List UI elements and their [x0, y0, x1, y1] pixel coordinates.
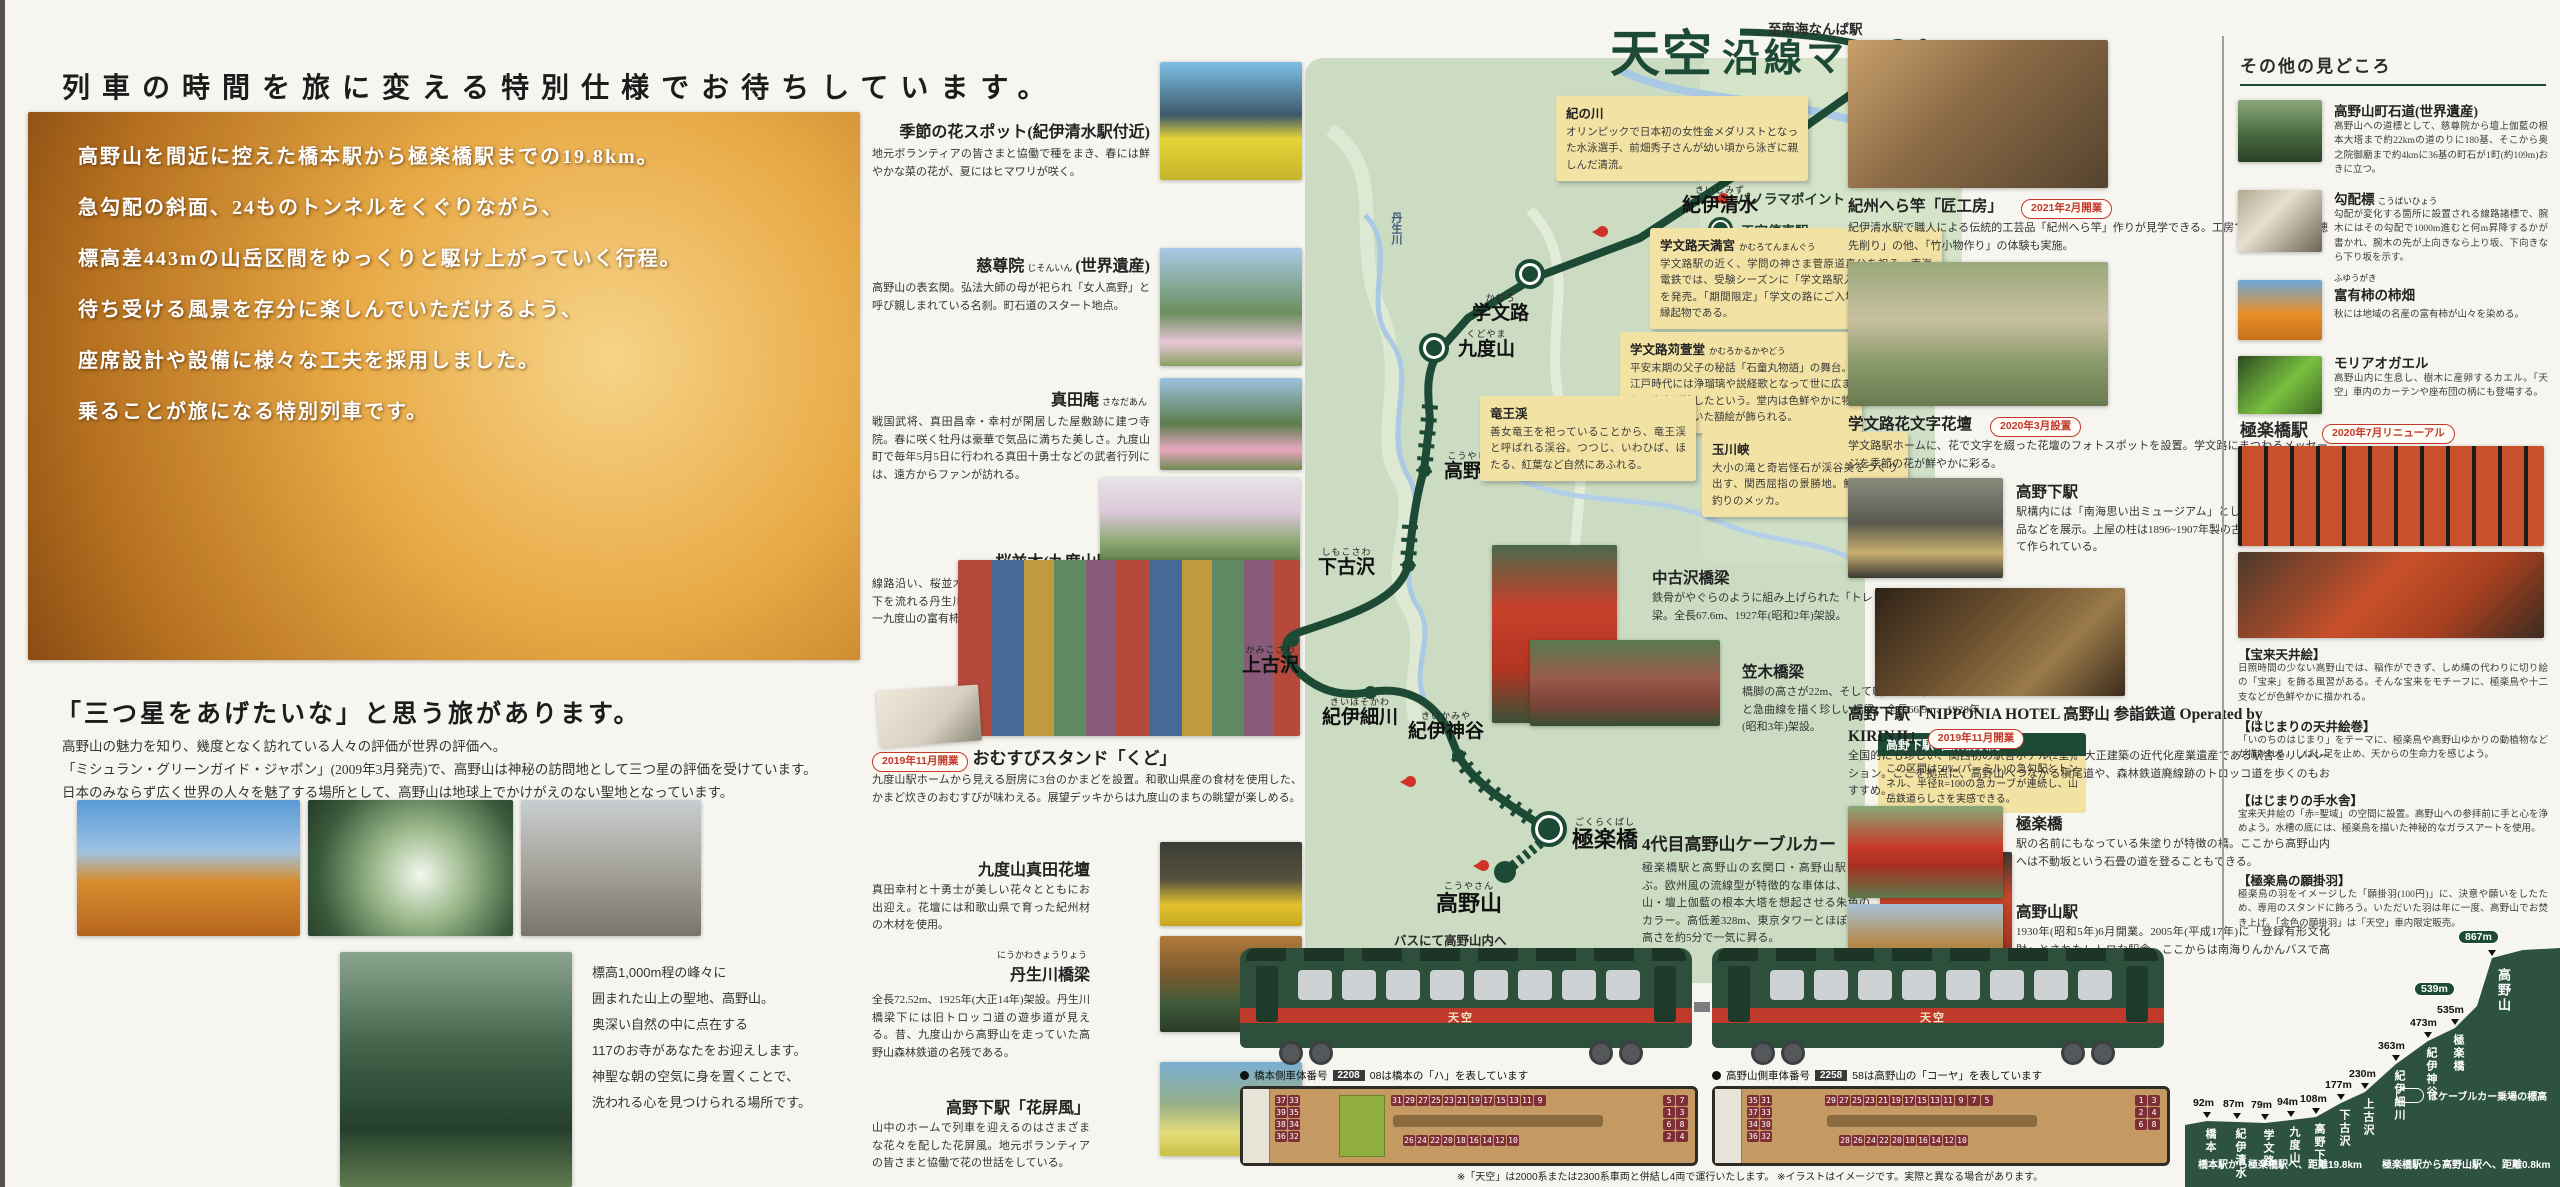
spot-omusubi-header: 2019年11月開業 おむすびスタンド「くど」: [872, 744, 1302, 772]
train-logo-2: 天空: [1920, 1009, 1946, 1025]
cable-pill-icon: [2396, 1088, 2424, 1103]
misc-title-kobaihyo: 勾配標 こうばいひょう: [2334, 188, 2437, 208]
spot-body-kadan: 真田幸村と十勇士が美しい花々とともにお出迎え。花壇には和歌山県で育った紀州材の木…: [872, 882, 1090, 935]
car-number-badge: 2258: [1815, 1070, 1847, 1081]
station-label-kudoyama: くどやま九度山: [1458, 330, 1515, 361]
train-windows-2: [1770, 970, 2112, 1000]
gk-sec2-body: 「いのちのはじまり」をテーマに、極楽鳥や高野山ゆかりの動植物などが描かれる。しば…: [2238, 734, 2548, 763]
badge-gokurakubashi: 2020年7月リニューアル: [2322, 424, 2455, 444]
ele-val: 87m: [2223, 1098, 2244, 1110]
ele-val: 177m: [2325, 1079, 2352, 1091]
photo-station-lobby: [2238, 552, 2544, 638]
rc-item6-title: 高野山駅: [2016, 900, 2078, 922]
ele-marker: [2451, 1019, 2459, 1029]
station-dot-kudoyama: [1423, 337, 1445, 359]
station-label-kiishimizu: きいしみず紀伊清水: [1682, 186, 1758, 217]
rc-item5-title: 極楽橋: [2016, 812, 2063, 834]
station-dot-koyashita: [1418, 464, 1431, 477]
train-wheel: [1754, 1044, 1772, 1062]
callout-ryuokei: 竜王渓 善女竜王を祀っていることから、竜王渓と呼ばれる渓谷。つつじ、いわひば、ほ…: [1480, 396, 1696, 481]
ele-val: 230m: [2349, 1068, 2376, 1080]
gk-sec2-title: 【はじまりの天井絵巻】: [2238, 716, 2376, 735]
headline: 列車の時間を旅に変える特別仕様でお待ちしています。: [62, 66, 1058, 106]
ele-marker: [2312, 1108, 2320, 1118]
photo-gokuraku-bridge: [1848, 806, 2003, 898]
michelin-title: 「三つ星をあげたいな」と思う旅があります。: [56, 694, 642, 730]
gk-sec3-title: 【はじまりの手水舎】: [2238, 790, 2363, 809]
ele-marker: [2392, 1055, 2400, 1065]
seatmap-counter: [1393, 1115, 1603, 1127]
misc-body-kobaihyo: 勾配が変化する箇所に設置される線路諸標で、腕木にはその勾配で1000m進むと何m…: [2334, 208, 2548, 265]
spot-title-kadan: 九度山真田花壇: [872, 856, 1090, 880]
seatmap-counter: [1827, 1115, 2037, 1127]
train-wheel: [1312, 1044, 1330, 1062]
ele-val: 108m: [2300, 1093, 2327, 1105]
train-door-1b: [1654, 966, 1676, 1022]
spot-title-hanabyobu: 高野下駅「花屏風」: [872, 1094, 1090, 1118]
spot-body-hana: 地元ボランティアの皆さまと協働で種をまき、春には鮮やかな菜の花が、夏にはヒマワリ…: [872, 146, 1150, 181]
spot-title-hana: 季節の花スポット(紀伊清水駅付近): [872, 118, 1150, 142]
brochure-page: 列車の時間を旅に変える特別仕様でお待ちしています。 高野山を間近に控えた橋本駅か…: [0, 0, 2560, 1187]
train-logo-1: 天空: [1448, 1009, 1474, 1025]
ele-val: 363m: [2378, 1040, 2405, 1052]
station-label-kiikamiya: きいかみや紀伊神谷: [1408, 712, 1484, 743]
train-windows-1: [1298, 970, 1640, 1000]
seat-pairs-left: 3733393538343632: [1275, 1095, 1301, 1143]
ele-station: 紀伊清水: [2232, 1128, 2248, 1180]
misc-header: その他の見どころ: [2240, 52, 2392, 77]
column-divider: [2222, 36, 2224, 940]
seatmap-koyasan-car: 3531373334303632 29272523211917151311975…: [1712, 1086, 2170, 1166]
ele-station: 上古沢: [2360, 1098, 2376, 1137]
seatmap-caption-right: 高野山側車体番号 2258 58は高野山の「コーヤ」を表しています: [1712, 1068, 2042, 1083]
badge-nipponia: 2019年11月開業: [1928, 729, 2024, 749]
distance-note-2: 極楽橋駅から高野山駅へ、距離0.8km: [2382, 1156, 2550, 1171]
to-namba-label: 至南海なんば駅: [1768, 18, 1863, 38]
michelin-text: 高野山の魅力を知り、幾度となく訪れている人々の評価が世界の評価へ。 「ミシュラン…: [62, 736, 862, 805]
bus-note: バスにて高野山内へ: [1394, 930, 1507, 949]
station-dot-koyasan: [1494, 861, 1516, 883]
seatmap-green-mat: [1339, 1095, 1385, 1157]
scan-edge: [0, 0, 5, 1187]
badge-omusubi: 2019年11月開業: [872, 752, 968, 772]
cablecar-body: 極楽橋駅と高野山の玄関口・高野山駅を結ぶ。欧州風の流線型が特徴的な車体は、高野山…: [1642, 860, 1870, 948]
ele-val: 92m: [2193, 1097, 2214, 1109]
train-car-koyasan: 天空: [1712, 948, 2164, 1048]
ele-marker: [2261, 1114, 2269, 1124]
tenku-logo: 天空: [1610, 26, 1714, 82]
train-wheel: [2094, 1044, 2112, 1062]
ele-val: 94m: [2277, 1096, 2298, 1108]
intro-text: 高野山を間近に控えた橋本駅から極楽橋駅までの19.8km。 急勾配の斜面、24も…: [78, 140, 682, 424]
seatmap-caption-left: 橋本側車体番号 2208 08は橋本の「ハ」を表しています: [1240, 1068, 1528, 1083]
photo-frog: [2238, 356, 2322, 414]
badge-herazao: 2021年2月開業: [2021, 199, 2112, 219]
misc-body-kaki: 秋には地域の名産の富有柿が山々を染める。: [2334, 308, 2548, 322]
train-wheel: [1282, 1044, 1300, 1062]
photo-onigiri: [876, 685, 982, 748]
spot-body-omusubi: 九度山駅ホームから見える厨房に3台のかまどを設置。和歌山県産の食材を使用した、か…: [872, 772, 1302, 807]
photo-herazao-craftsman: [1848, 40, 2108, 188]
spot-body-hanabyobu: 山中のホームで列車を迎えるのはさまざまな花々を配した花屏風。地元ボランティアの皆…: [872, 1120, 1090, 1173]
train-wheel: [1784, 1044, 1802, 1062]
bullet-icon: [1240, 1071, 1249, 1080]
seat-window-row: 31292725232119171513119: [1391, 1095, 1547, 1107]
rc-item5-body: 駅の名前にもなっている朱塗りが特徴の橋。ここから高野山内へは不動坂という石畳の道…: [2016, 836, 2330, 871]
ele-val: 79m: [2251, 1099, 2272, 1111]
station-label-kiihosokawa: きいほそかわ紀伊細川: [1322, 698, 1398, 729]
train-roof-2: [1718, 948, 2158, 961]
train-coupling: [1694, 1002, 1710, 1012]
misc-body-frog: 高野山内に生息し、樹木に産卵するカエル。「天空」車内のカーテンや座布団の柄にも登…: [2334, 372, 2548, 401]
train-roof-1: [1246, 948, 1686, 961]
distance-note-1: 橋本駅から極楽橋駅へ、距離19.8km: [2198, 1156, 2362, 1171]
panorama-marker-1: [1597, 226, 1608, 237]
ele-marker: [2203, 1112, 2211, 1122]
photo-kasagi-bridge: [1530, 640, 1720, 726]
panorama-marker-2: [1405, 776, 1416, 787]
train-door-2a: [1728, 966, 1750, 1022]
photo-choishimichi: [2238, 100, 2322, 162]
photo-ceiling-art: [2238, 446, 2544, 546]
station-label-koyasan: こうやさん高野山: [1436, 882, 1502, 916]
seat-mid-row: 262422201816141210: [1403, 1135, 1520, 1147]
badge-hanamoji: 2020年3月設置: [1990, 417, 2081, 437]
spot-title-jisonin: 慈尊院じそんいん(世界遺産): [872, 252, 1150, 276]
bullet-icon: [1712, 1071, 1721, 1080]
seat-mid-row: 28262422201816141210: [1839, 1135, 1969, 1147]
train-wheel: [1592, 1044, 1610, 1062]
train-footnote: ※「天空」は2000系または2300系車両と併結し4両で運行いたします。 ※イラ…: [1330, 1168, 2170, 1183]
river-label: 丹生川: [1388, 212, 1404, 245]
ele-marker: [2337, 1094, 2345, 1104]
misc-title-frog: モリアオガエル: [2334, 352, 2429, 372]
train-door-2b: [2126, 966, 2148, 1022]
rc-item1-header: 紀州へら竿「匠工房」 2021年2月開業: [1848, 194, 2112, 219]
seat-pairs-left: 3531373334303632: [1747, 1095, 1773, 1143]
rc-item3-title: 高野下駅: [2016, 480, 2078, 502]
station-dot-kamuro: [1519, 263, 1541, 285]
gk-sec1-body: 日照時間の少ない高野山では、稲作ができず、しめ縄の代わりに切り絵の「宝来」を飾る…: [2238, 662, 2548, 705]
spot-body-sanadaan: 戦国武将、真田昌幸・幸村が閑居した屋敷跡に建つ寺院。春に咲く牡丹は豪華で気品に満…: [872, 414, 1150, 484]
cable-legend: はケーブルカー乗場の標高: [2396, 1088, 2547, 1103]
ele-station: 橋本: [2202, 1128, 2218, 1154]
ele-station: 下古沢: [2336, 1109, 2352, 1148]
gk-sec1-title: 【宝来天井絵】: [2238, 644, 2326, 663]
train-car-hashimoto: 天空: [1240, 948, 1692, 1048]
cable-elevation-539: 539m: [2414, 982, 2455, 996]
ele-marker: [2424, 1032, 2432, 1042]
spot-title-sanadaan: 真田庵さなだあん: [872, 386, 1150, 410]
rc-item2-header: 学文路花文字花壇 2020年3月設置: [1848, 412, 2081, 437]
photo-kamuro-flowerbed: [1848, 262, 2108, 406]
seatmap-hashimoto-car: 3733393538343632 31292725232119171513119…: [1240, 1086, 1698, 1166]
spot-body-jisonin: 高野山の表玄関。弘法大師の母が祀られ「女人高野」と呼び親しまれている名刹。町石道…: [872, 280, 1150, 315]
gk-sec3-body: 宝来天井絵の「赤=聖域」の空間に設置。高野山への参拝前に手と心を浄めよう。水槽の…: [2238, 808, 2548, 837]
ele-station: 高野山: [2494, 968, 2513, 1013]
station-dot-kiikamiya: [1452, 749, 1465, 762]
misc-title-kaki: ふゆうがき 富有柿の柿畑: [2334, 272, 2415, 304]
misc-header-rule: [2240, 84, 2546, 86]
koyasan-note: 標高1,000m程の峰々に 囲まれた山上の聖地、高野山。 奥深い自然の中に点在す…: [592, 960, 852, 1116]
photo-kobaihyo: [2238, 190, 2322, 252]
ele-val: 473m: [2410, 1017, 2437, 1029]
photo-kaki: [2238, 280, 2322, 340]
seat-pairs-right: 132468: [2135, 1095, 2161, 1131]
ele-marker: [2233, 1113, 2241, 1123]
ele-marker: [2488, 950, 2496, 960]
misc-body-choishimichi: 高野山への道標として、慈尊院から壇上伽藍の根本大塔まで約22kmの道のりに180…: [2334, 120, 2548, 177]
train-wheel: [1622, 1044, 1640, 1062]
station-label-kamikosawa: かみこさわ上古沢: [1242, 646, 1299, 677]
ele-station: 極楽橋: [2450, 1034, 2466, 1073]
photo-townscape: [521, 800, 701, 936]
callout-kinokawa: 紀の川 オリンピックで日本初の女性金メダリストとなった水泳選手、前畑秀子さんが幼…: [1556, 96, 1808, 181]
photo-koyashita-museum: [1848, 478, 2003, 578]
ele-marker: [2361, 1083, 2369, 1093]
station-dot-shimokosawa: [1402, 559, 1415, 572]
car-number-badge: 2208: [1333, 1070, 1365, 1081]
ele-marker: [2287, 1111, 2295, 1121]
ele-val: 535m: [2437, 1004, 2464, 1016]
gokurakubashi-station-header: 極楽橋駅 2020年7月リニューアル: [2240, 416, 2455, 444]
panorama-marker-3: [1478, 860, 1489, 871]
seatmap-vestibule: [1243, 1089, 1270, 1163]
seatmap-vestibule: [1715, 1089, 1742, 1163]
seat-pairs-right: 57136824: [1663, 1095, 1689, 1143]
train-wheel: [2064, 1044, 2082, 1062]
photo-nipponia-hotel: [1875, 588, 2125, 696]
cable-elevation-867: 867m: [2458, 930, 2499, 944]
train-door-1a: [1256, 966, 1278, 1022]
station-label-gokurakubashi: ごくらくばし極楽橋: [1572, 818, 1638, 852]
photo-okunoin-forest: [340, 952, 572, 1187]
station-label-shimokosawa: しもこさわ下古沢: [1318, 548, 1375, 579]
gk-sec4-title: 【極楽鳥の願掛羽】: [2238, 870, 2351, 889]
misc-title-choishimichi: 高野山町石道(世界遺産): [2334, 100, 2478, 120]
seat-window-row: 29272523211917151311975: [1825, 1095, 1994, 1107]
bridge-title-nakakosawa: 中古沢橋梁: [1652, 566, 1730, 588]
station-dot-gokurakubashi: [1535, 815, 1563, 843]
station-label-kamuro: かむろ学文路: [1472, 294, 1529, 325]
spot-body-nyugawa: 全長72.52m、1925年(大正14年)架設。丹生川橋梁下には旧トロッコ道の遊…: [872, 992, 1090, 1062]
photo-temple-path: [308, 800, 513, 936]
photo-monks: [77, 800, 300, 936]
bridge-title-kasagi: 笠木橋梁: [1742, 660, 1804, 682]
spot-title-nyugawa: にうかわきょうりょう 丹生川橋梁: [872, 948, 1090, 985]
